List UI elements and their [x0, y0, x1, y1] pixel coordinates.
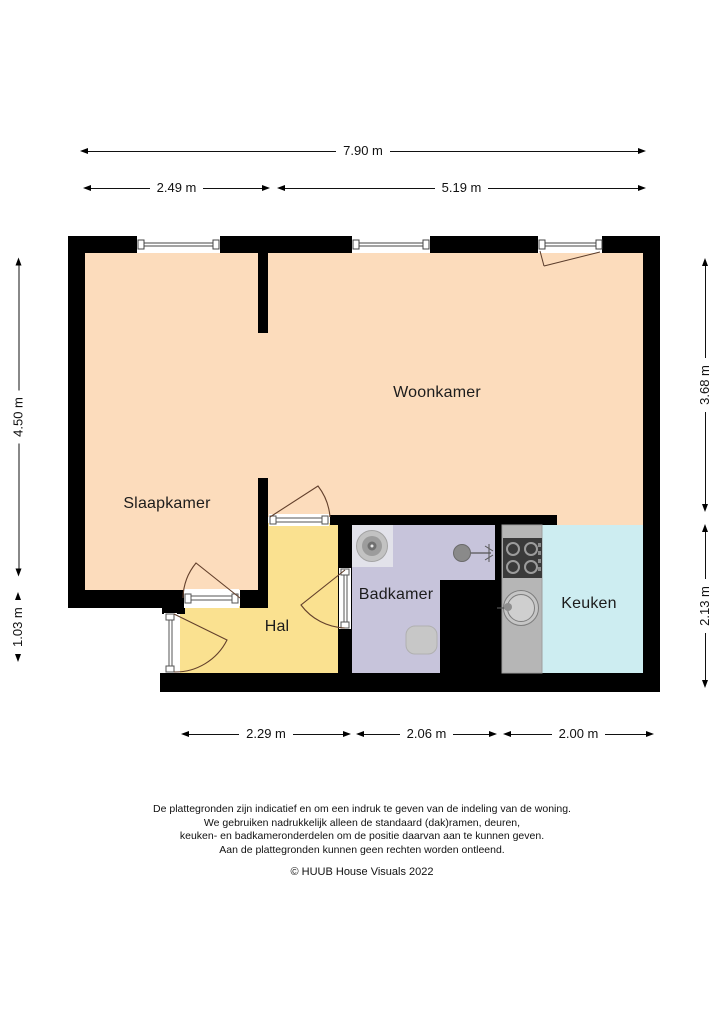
- dimension-left-lower: 1.03 m: [11, 598, 25, 662]
- arrow-left-icon: [83, 185, 91, 191]
- disclaimer-line: keuken- en badkameronderdelen om de posi…: [0, 830, 724, 844]
- arrow-right-icon: [343, 731, 351, 737]
- arrow-down-icon: [702, 680, 708, 688]
- arrow-down-icon: [702, 504, 708, 512]
- arrow-left-icon: [277, 185, 285, 191]
- dimension-value: 2.29 m: [239, 727, 293, 741]
- disclaimer-line: Aan de plattegronden kunnen geen rechten…: [0, 844, 724, 858]
- arrow-up-icon: [16, 258, 22, 266]
- dimension-value: 1.03 m: [11, 600, 25, 654]
- arrow-right-icon: [489, 731, 497, 737]
- dimension-bottom-left: 2.29 m: [181, 727, 351, 741]
- stove-icon: [503, 538, 542, 578]
- door-threshold: [339, 568, 351, 629]
- arrow-up-icon: [702, 524, 708, 532]
- door-threshold: [269, 514, 329, 526]
- dimension-right-upper: 3.68 m: [698, 258, 712, 512]
- arrow-down-icon: [16, 569, 22, 577]
- arrow-left-icon: [80, 148, 88, 154]
- arrow-right-icon: [638, 148, 646, 154]
- dimension-value: 2.49 m: [150, 181, 204, 195]
- room-label-badkamer: Badkamer: [359, 586, 434, 604]
- dimension-value: 2.06 m: [400, 727, 454, 741]
- dimension-right-lower: 2.13 m: [698, 524, 712, 688]
- arrow-left-icon: [356, 731, 364, 737]
- toilet-icon: [406, 626, 437, 654]
- room-label-keuken: Keuken: [561, 595, 616, 613]
- dimension-top-total: 7.90 m: [80, 144, 646, 158]
- arrow-right-icon: [262, 185, 270, 191]
- arrow-up-icon: [15, 592, 21, 600]
- window-icon: [137, 236, 220, 253]
- footer: De plattegronden zijn indicatief en om e…: [0, 803, 724, 878]
- arrow-up-icon: [702, 258, 708, 266]
- dimension-value: 2.00 m: [552, 727, 606, 741]
- dimension-value: 7.90 m: [336, 144, 390, 158]
- room-label-slaapkamer: Slaapkamer: [123, 495, 210, 513]
- door-threshold: [164, 613, 177, 673]
- arrow-right-icon: [638, 185, 646, 191]
- door-threshold: [184, 589, 239, 608]
- dimension-value: 3.68 m: [698, 358, 712, 412]
- dimension-value: 2.13 m: [698, 579, 712, 633]
- disclaimer-line: We gebruiken nadrukkelijk alleen de stan…: [0, 817, 724, 831]
- room-label-hal: Hal: [265, 618, 290, 636]
- dimension-left-upper: 4.50 m: [12, 258, 26, 577]
- arrow-right-icon: [646, 731, 654, 737]
- floorplan-page: Slaapkamer Woonkamer Hal Badkamer Keuken…: [0, 0, 724, 1024]
- dimension-bottom-middle: 2.06 m: [356, 727, 497, 741]
- room-label-woonkamer: Woonkamer: [393, 384, 481, 402]
- shower-icon: [352, 525, 393, 567]
- dimension-bottom-right: 2.00 m: [503, 727, 654, 741]
- dimension-value: 5.19 m: [435, 181, 489, 195]
- disclaimer-line: De plattegronden zijn indicatief en om e…: [0, 803, 724, 817]
- arrow-down-icon: [15, 654, 21, 662]
- room-slaapkamer-floor: [85, 253, 258, 590]
- dimension-top-right: 5.19 m: [277, 181, 646, 195]
- arrow-left-icon: [181, 731, 189, 737]
- window-icon: [352, 236, 430, 253]
- dimension-value: 4.50 m: [12, 390, 26, 444]
- copyright-text: © HUUB House Visuals 2022: [0, 866, 724, 878]
- arrow-left-icon: [503, 731, 511, 737]
- dimension-top-left: 2.49 m: [83, 181, 270, 195]
